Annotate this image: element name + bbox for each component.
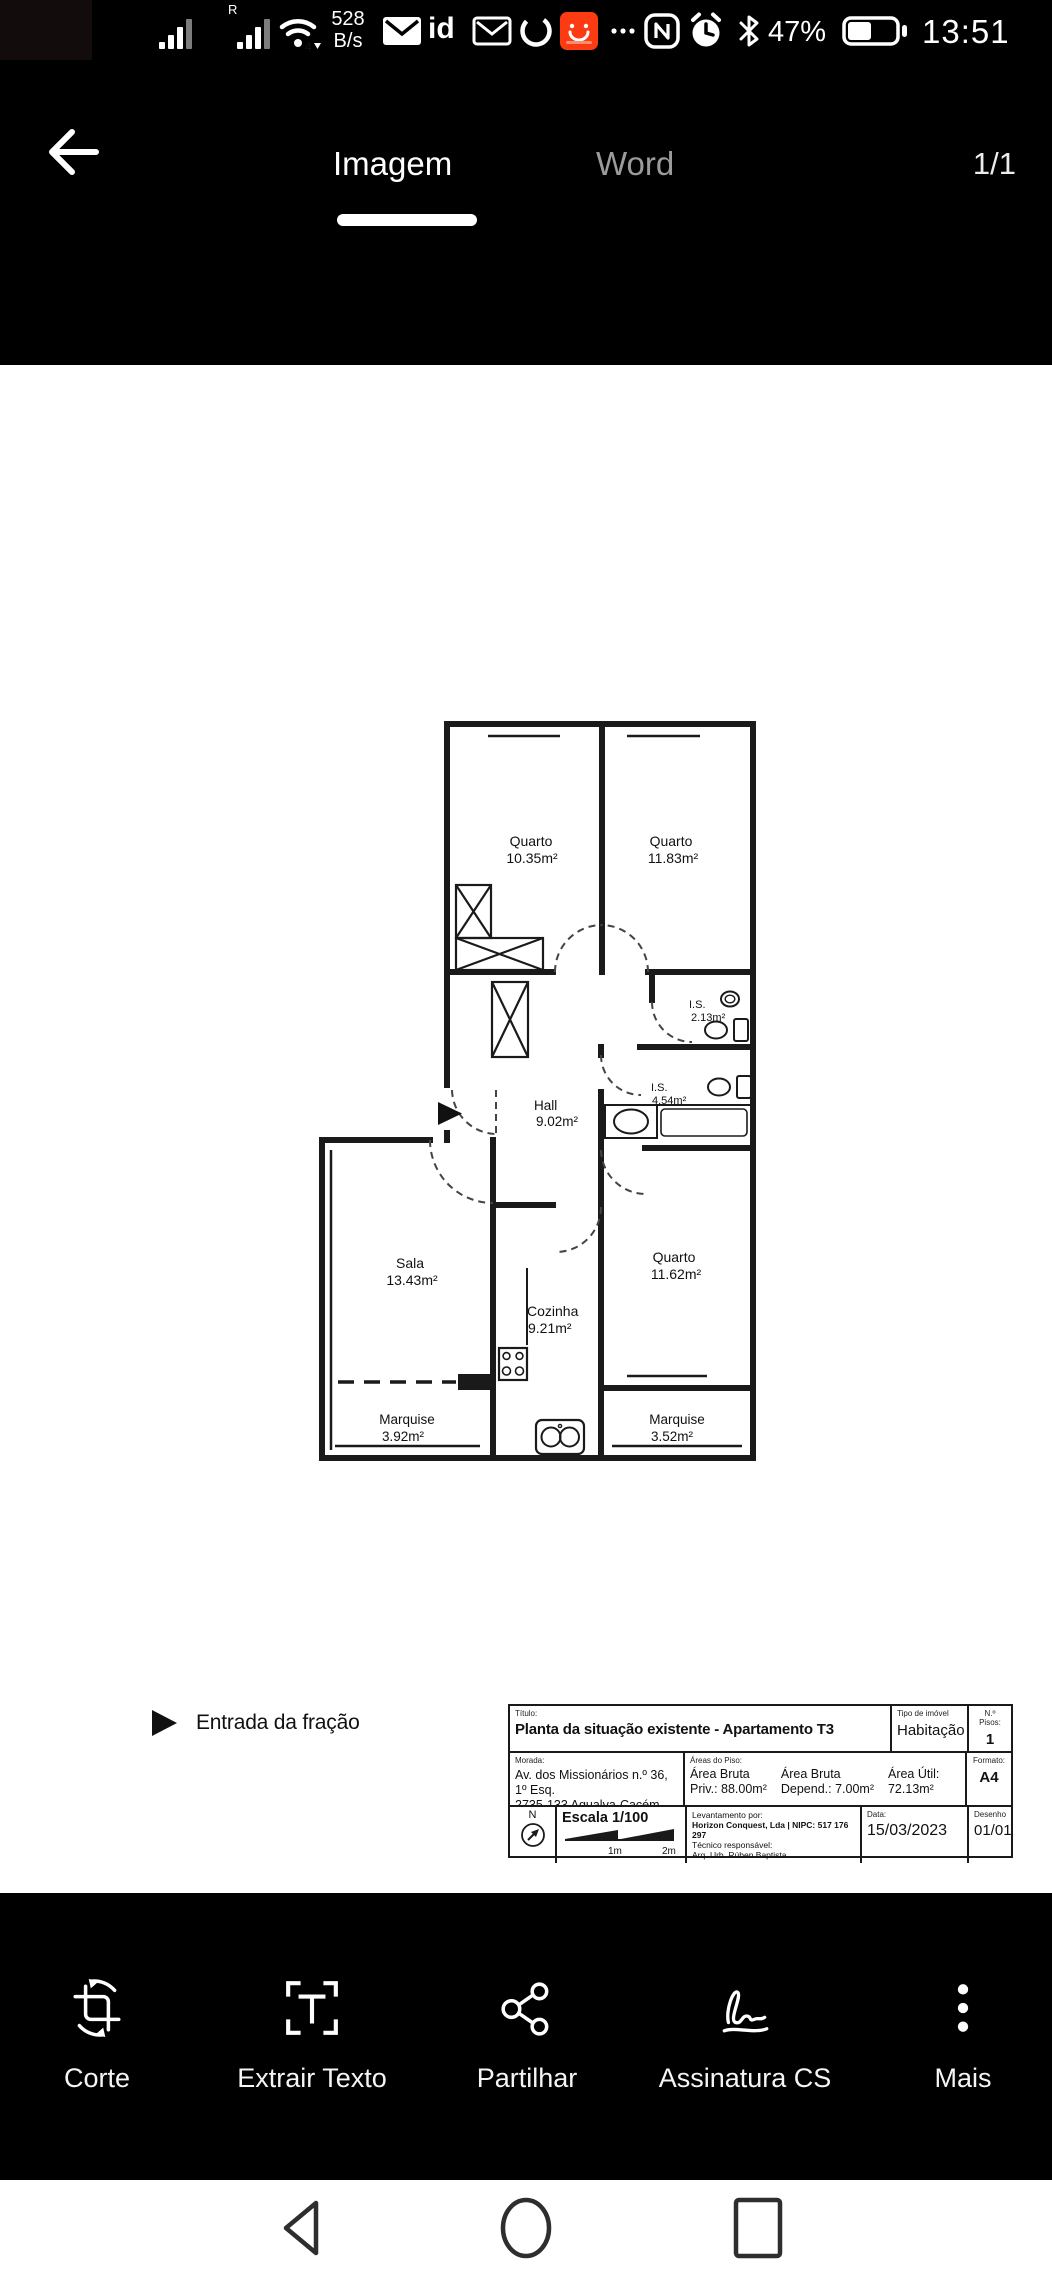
formato-cell: Formato: A4 xyxy=(967,1753,1011,1805)
nav-back-icon xyxy=(274,2198,330,2258)
mail-notification-icon xyxy=(382,16,422,46)
screen-corner-shadow xyxy=(0,0,92,60)
area-util: Área Útil:72.13m² xyxy=(888,1767,939,1797)
page-indicator: 1/1 xyxy=(973,146,1016,182)
overflow-dots-icon xyxy=(610,26,638,36)
floor-plan-image: Quarto 10.35m² Quarto 11.83m² I.S. 2.13m… xyxy=(290,690,770,1490)
room-area: 10.35m² xyxy=(506,850,558,866)
extract-text-icon xyxy=(283,1979,341,2037)
technician: Arq. Urb. Rúben Baptista xyxy=(692,1850,855,1860)
north-label: N xyxy=(512,1809,553,1821)
extract-text-button[interactable]: Extrair Texto xyxy=(202,1893,422,2180)
app-header: Imagem Word 1/1 xyxy=(0,62,1052,365)
tab-imagem[interactable]: Imagem xyxy=(333,145,452,183)
entrance-arrow-icon xyxy=(438,1102,462,1125)
levantamento-cell: Levantamento por: Horizon Conquest, Lda … xyxy=(687,1807,862,1863)
title-block-row2: Morada: Av. dos Missionários n.º 36, 1º … xyxy=(510,1753,1011,1807)
aliexpress-app-icon xyxy=(560,12,598,50)
room-label: Sala xyxy=(396,1255,424,1271)
share-button[interactable]: Partilhar xyxy=(417,1893,637,2180)
pisos-cell: N.º Pisos: 1 xyxy=(969,1706,1011,1751)
room-label: I.S. xyxy=(651,1082,668,1094)
formato-value: A4 xyxy=(972,1769,1006,1786)
area-bruta-depend: Área BrutaDepend.: 7.00m² xyxy=(781,1767,874,1797)
network-speed: 528 B/s xyxy=(322,8,374,52)
room-area: 3.92m² xyxy=(382,1429,425,1444)
room-label: I.S. xyxy=(689,999,706,1011)
signature-button[interactable]: Assinatura CS xyxy=(635,1893,855,2180)
more-button[interactable]: Mais xyxy=(853,1893,1052,2180)
share-icon xyxy=(498,1979,556,2037)
room-area: 9.21m² xyxy=(528,1320,572,1336)
title-block-row1: Título: Planta da situação existente - A… xyxy=(510,1706,1011,1753)
alarm-clock-icon xyxy=(686,11,726,51)
room-area: 3.52m² xyxy=(651,1429,694,1444)
scale-2m: 2m xyxy=(662,1846,676,1857)
scale-1m: 1m xyxy=(608,1846,622,1857)
date-value: 15/03/2023 xyxy=(867,1822,962,1840)
room-area: 11.62m² xyxy=(651,1266,702,1282)
titulo-cell: Título: Planta da situação existente - A… xyxy=(510,1706,892,1751)
crop-rotate-icon xyxy=(68,1979,126,2037)
email-outline-icon xyxy=(472,16,512,46)
nav-home-icon xyxy=(496,2195,556,2261)
room-area: 4.54m² xyxy=(652,1095,687,1107)
phone-screen: R 4 528 B/s id xyxy=(0,0,1052,2276)
signal-strength-icon-2 xyxy=(236,14,272,52)
data-cell: Data: 15/03/2023 xyxy=(862,1807,969,1863)
pisos-value: 1 xyxy=(974,1731,1006,1748)
north-cell: N xyxy=(510,1807,557,1863)
title-block: Título: Planta da situação existente - A… xyxy=(508,1704,1013,1858)
svg-text:4: 4 xyxy=(305,40,312,52)
tipo-value: Habitação xyxy=(897,1722,962,1739)
active-tab-underline xyxy=(337,214,477,226)
battery-percent: 47% xyxy=(768,16,826,49)
room-label: Quarto xyxy=(510,833,553,849)
nav-back-button[interactable] xyxy=(242,2180,362,2276)
room-label: Cozinha xyxy=(527,1303,579,1319)
kitchen-fixtures xyxy=(499,1268,584,1454)
scale-bar-icon xyxy=(562,1826,678,1841)
entrance-legend: Entrada da fração xyxy=(150,1708,360,1738)
room-area: 13.43m² xyxy=(386,1272,438,1288)
bluetooth-icon xyxy=(737,11,763,51)
entrance-label: Entrada da fração xyxy=(196,1711,360,1735)
escala-value: Escala 1/100 xyxy=(562,1810,680,1826)
morada-line2: 2735-133 Agualva-Cacém, Sintra xyxy=(515,1798,678,1805)
wall-stub xyxy=(458,1374,493,1390)
back-button[interactable] xyxy=(44,124,104,180)
surveyor: Horizon Conquest, Lda | NIPC: 517 176 29… xyxy=(692,1820,855,1840)
room-area: 2.13m² xyxy=(691,1012,726,1024)
bathroom-fixtures xyxy=(605,992,751,1139)
morada-cell: Morada: Av. dos Missionários n.º 36, 1º … xyxy=(510,1753,685,1805)
signal-strength-icon xyxy=(158,14,194,52)
escala-cell: Escala 1/100 1m 2m xyxy=(557,1807,687,1863)
north-compass-icon xyxy=(519,1821,547,1849)
area-bruta-priv: Área BrutaPriv.: 88.00m² xyxy=(690,1767,767,1797)
wifi-arrow xyxy=(314,43,321,49)
sync-progress-icon xyxy=(518,13,554,49)
tab-word[interactable]: Word xyxy=(596,145,674,183)
room-label: Marquise xyxy=(649,1412,705,1427)
morada-line1: Av. dos Missionários n.º 36, 1º Esq. xyxy=(515,1768,678,1798)
nav-recents-button[interactable] xyxy=(698,2180,818,2276)
room-label: Marquise xyxy=(379,1412,435,1427)
wardrobe-icons xyxy=(456,885,543,1057)
id-app-icon: id xyxy=(428,12,455,46)
nav-recents-icon xyxy=(732,2196,784,2260)
tipo-cell: Tipo de imóvel Habitação xyxy=(892,1706,969,1751)
drawing-number: 01/01 xyxy=(974,1822,1006,1839)
desenho-cell: Desenho 01/01 xyxy=(969,1807,1011,1863)
wifi-icon: 4 xyxy=(278,12,322,52)
room-label: Quarto xyxy=(650,833,693,849)
room-area: 9.02m² xyxy=(536,1114,579,1129)
plan-title: Planta da situação existente - Apartamen… xyxy=(515,1721,885,1738)
areas-cell: Áreas do Piso: Área BrutaPriv.: 88.00m² … xyxy=(685,1753,967,1805)
nav-home-button[interactable] xyxy=(466,2180,586,2276)
signature-icon xyxy=(715,1979,775,2037)
bottom-toolbar: Corte Extrair Texto Partilhar xyxy=(0,1893,1052,2180)
more-vertical-icon xyxy=(934,1979,992,2037)
crop-button[interactable]: Corte xyxy=(0,1893,207,2180)
title-block-row3: N Escala 1/100 xyxy=(510,1807,1011,1863)
room-area: 11.83m² xyxy=(648,850,699,866)
room-label: Quarto xyxy=(653,1249,696,1265)
entrance-arrow-icon xyxy=(150,1708,178,1738)
status-bar: R 4 528 B/s id xyxy=(0,0,1052,62)
nfc-icon xyxy=(644,13,680,49)
clock: 13:51 xyxy=(922,13,1010,51)
navigation-bar xyxy=(0,2180,1052,2276)
document-canvas[interactable]: Quarto 10.35m² Quarto 11.83m² I.S. 2.13m… xyxy=(0,365,1052,1893)
room-label: Hall xyxy=(534,1098,557,1113)
battery-icon xyxy=(842,15,910,47)
